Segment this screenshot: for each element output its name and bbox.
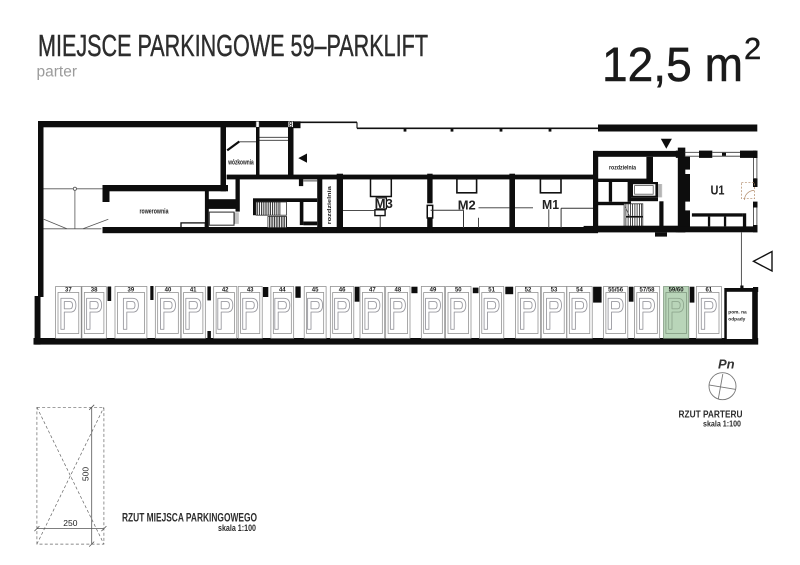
svg-text:M3: M3	[375, 196, 393, 211]
svg-text:wózkownia: wózkownia	[228, 159, 254, 166]
svg-text:43: 43	[247, 288, 254, 294]
svg-text:M1: M1	[542, 197, 559, 212]
svg-text:Pn: Pn	[718, 357, 735, 372]
svg-text:odpady: odpady	[728, 317, 745, 323]
svg-text:51: 51	[488, 288, 495, 294]
svg-text:49: 49	[430, 288, 437, 294]
svg-text:rozdzielnia: rozdzielnia	[327, 185, 333, 224]
svg-text:500: 500	[81, 467, 91, 481]
svg-text:55/56: 55/56	[608, 288, 624, 294]
svg-text:54: 54	[576, 288, 583, 294]
svg-text:40: 40	[165, 288, 172, 294]
svg-text:250: 250	[63, 518, 77, 528]
svg-text:37: 37	[65, 288, 72, 294]
svg-text:47: 47	[369, 288, 376, 294]
svg-text:rozdzielnia: rozdzielnia	[609, 165, 636, 172]
svg-text:48: 48	[395, 288, 402, 294]
svg-text:skala 1:100: skala 1:100	[703, 419, 741, 429]
svg-text:57/58: 57/58	[639, 288, 655, 294]
svg-text:2: 2	[744, 31, 761, 66]
svg-text:rowerownia: rowerownia	[140, 209, 169, 216]
svg-text:39: 39	[128, 288, 135, 294]
svg-text:46: 46	[339, 288, 346, 294]
svg-text:12,5 m: 12,5 m	[602, 39, 743, 92]
svg-text:38: 38	[91, 288, 98, 294]
svg-text:U1: U1	[711, 184, 725, 198]
svg-text:MIEJSCE PARKINGOWE 59–PARKLIFT: MIEJSCE PARKINGOWE 59–PARKLIFT	[38, 28, 428, 63]
svg-text:61: 61	[705, 288, 712, 294]
svg-text:50: 50	[455, 288, 462, 294]
svg-text:53: 53	[551, 288, 558, 294]
svg-text:45: 45	[312, 288, 319, 294]
svg-text:59/60: 59/60	[669, 288, 685, 294]
svg-text:41: 41	[190, 288, 197, 294]
svg-text:parter: parter	[37, 64, 78, 81]
svg-text:42: 42	[222, 288, 229, 294]
svg-text:52: 52	[525, 288, 532, 294]
svg-text:pom. na: pom. na	[728, 311, 747, 316]
svg-text:skala 1:100: skala 1:100	[218, 523, 256, 533]
svg-text:44: 44	[279, 288, 286, 294]
